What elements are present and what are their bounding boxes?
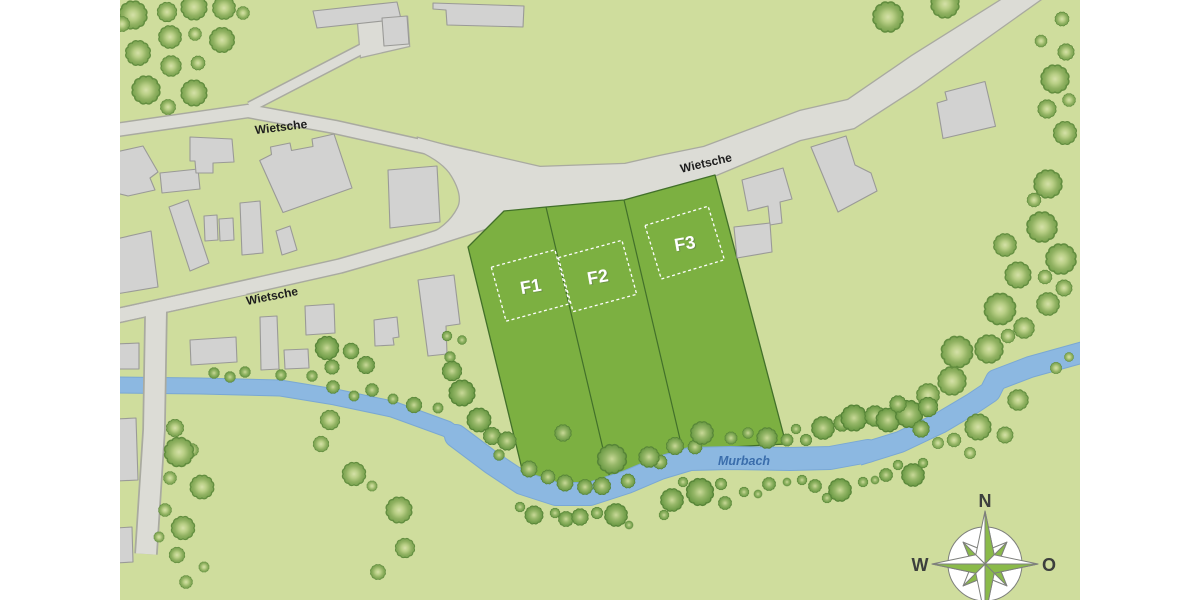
svg-text:W: W	[912, 555, 929, 575]
svg-text:Murbach: Murbach	[718, 454, 770, 468]
svg-text:O: O	[1042, 555, 1056, 575]
svg-text:F1: F1	[519, 275, 543, 298]
svg-text:F2: F2	[586, 265, 610, 288]
svg-text:N: N	[979, 491, 992, 511]
svg-text:F3: F3	[673, 232, 697, 255]
